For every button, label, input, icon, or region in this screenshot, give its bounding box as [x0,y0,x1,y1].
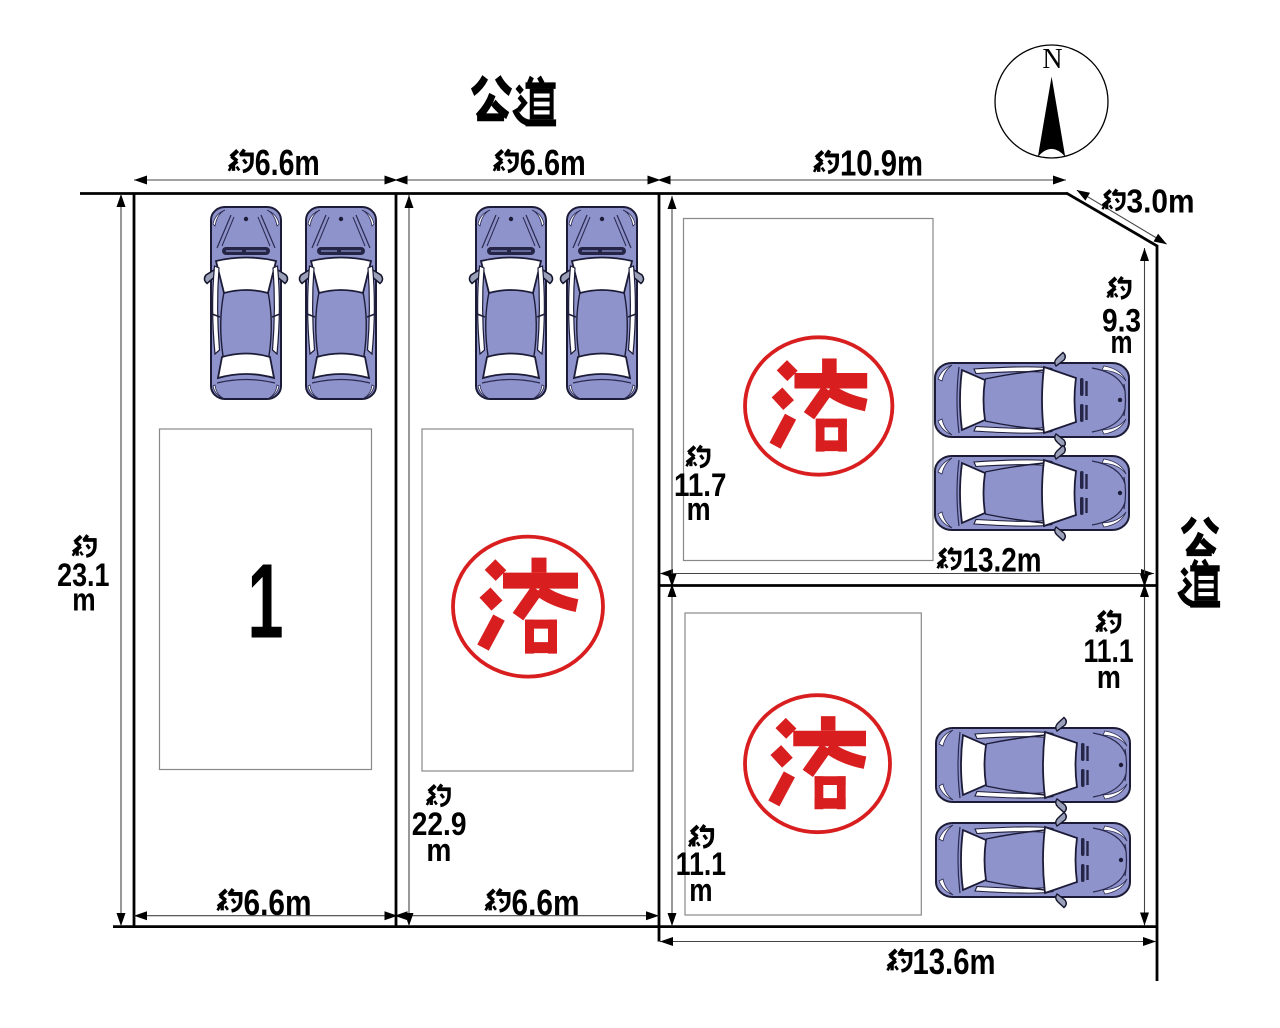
svg-text:10.9m: 10.9m [840,143,923,184]
svg-text:6.6m: 6.6m [512,882,580,923]
svg-text:m: m [1111,324,1133,360]
svg-text:N: N [1042,44,1062,75]
svg-text:m: m [72,582,95,618]
svg-text:m: m [426,832,451,868]
svg-text:1: 1 [248,542,284,660]
svg-text:m: m [1097,659,1121,695]
svg-text:m: m [689,872,712,908]
svg-text:13.6m: 13.6m [913,941,996,982]
svg-text:6.6m: 6.6m [244,882,312,923]
svg-text:6.6m: 6.6m [520,142,586,183]
svg-text:m: m [687,491,711,527]
svg-text:6.6m: 6.6m [255,142,320,183]
svg-text:3.0m: 3.0m [1127,183,1195,220]
svg-text:13.2m: 13.2m [963,542,1042,580]
